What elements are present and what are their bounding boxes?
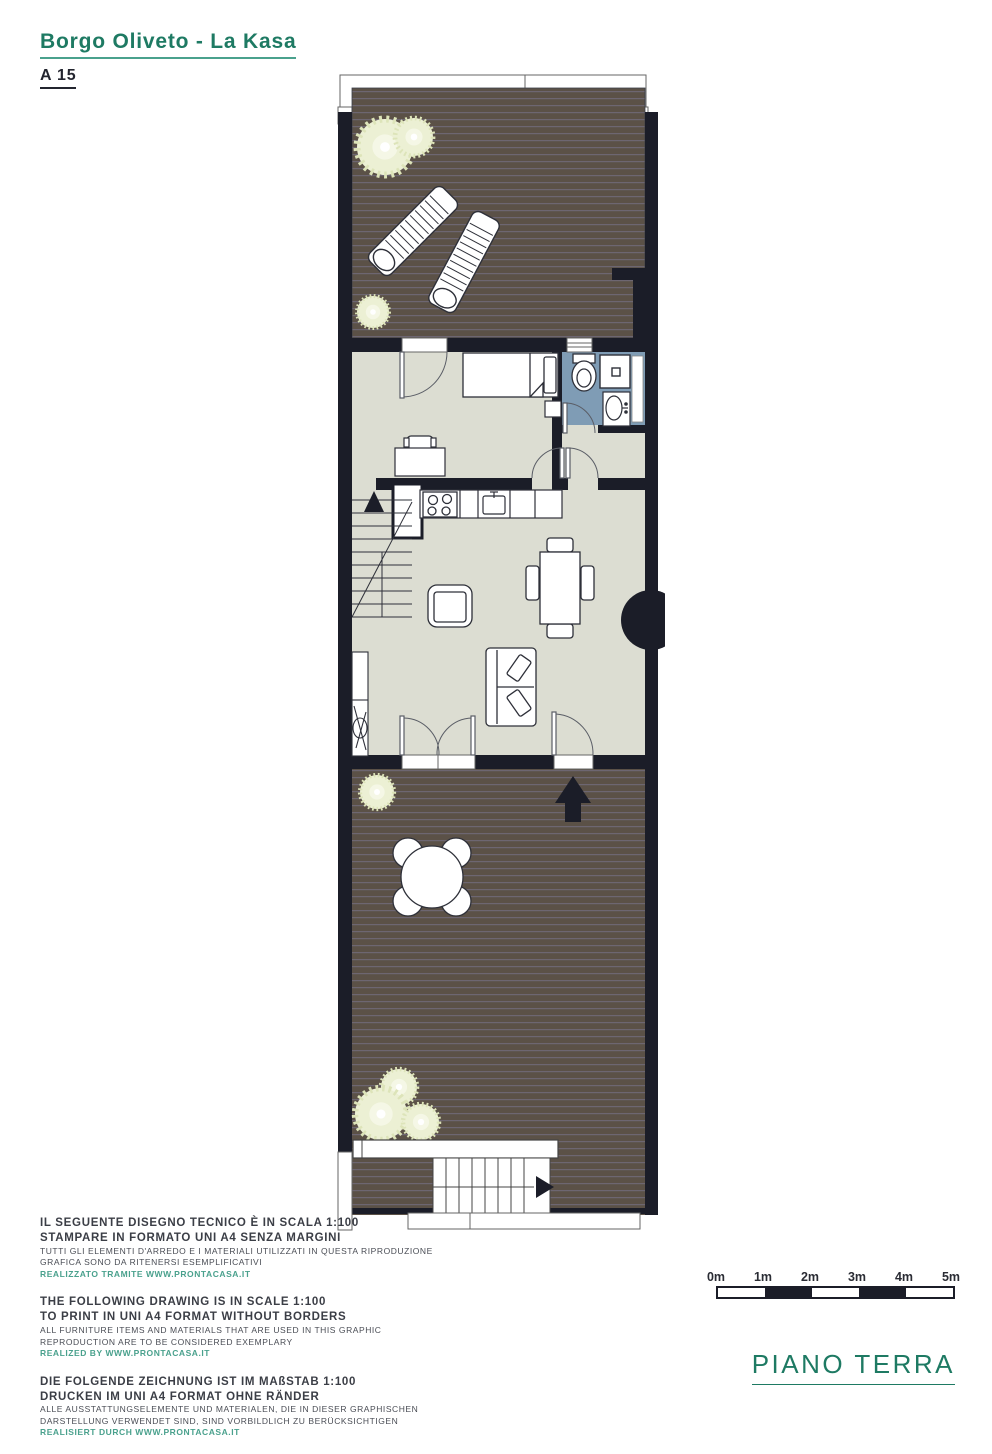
scale-label: 3m [848,1270,866,1284]
shower-glass [632,356,643,422]
disclaimer-de: DIE FOLGENDE ZEICHNUNG IST IM MAßSTAB 1:… [40,1375,470,1439]
credit-link[interactable]: REALIZZATO TRAMITE WWW.PRONTACASA.IT [40,1269,470,1280]
floor-label: PIANO TERRA [752,1349,955,1385]
chair-icon [407,436,433,449]
scale-label: 2m [801,1270,819,1284]
scale-label: 5m [942,1270,960,1284]
disclaimer-line: ALLE AUSSTATTUNGSELEMENTE UND MATERIALEN… [40,1404,470,1415]
armchair-icon [428,585,472,627]
scale-segment [906,1288,953,1297]
shower-icon [600,355,630,388]
wardrobe-icon [352,652,368,756]
page-title: Borgo Oliveto - La Kasa [40,30,296,59]
plant-icon [360,775,394,809]
scale-segment [812,1288,859,1297]
disclaimer-it: IL SEGUENTE DISEGNO TECNICO È IN SCALA 1… [40,1216,470,1280]
scale-label: 4m [895,1270,913,1284]
disclaimers: IL SEGUENTE DISEGNO TECNICO È IN SCALA 1… [40,1216,470,1454]
floor-plan [335,70,665,1235]
plant-icon [403,1104,439,1140]
scale-label: 0m [707,1270,725,1284]
scale-segment [765,1288,812,1297]
disclaimer-line: TUTTI GLI ELEMENTI D'ARREDO E I MATERIAL… [40,1246,470,1257]
disclaimer-line: TO PRINT IN UNI A4 FORMAT WITHOUT BORDER… [40,1310,470,1325]
scale-segment [859,1288,906,1297]
scale-labels: 0m 1m 2m 3m 4m 5m [716,1270,956,1286]
plant-icon [395,118,433,156]
disclaimer-line: GRAFICA SONO DA RITENERSI ESEMPLIFICATIV… [40,1257,470,1268]
sofa-icon [486,648,536,726]
exterior-stairs-icon [433,1158,554,1215]
plant-icon [357,296,389,328]
disclaimer-line: DIE FOLGENDE ZEICHNUNG IST IM MAßSTAB 1:… [40,1375,470,1390]
bench-icon [353,1140,558,1158]
toilet-icon [572,354,596,391]
disclaimer-line: STAMPARE IN FORMATO UNI A4 SENZA MARGINI [40,1231,470,1246]
scale-segment [718,1288,765,1297]
unit-label: A 15 [40,67,76,89]
round-table-icon [393,838,471,916]
plant-icon [355,1088,407,1140]
bathroom-sink-icon [603,392,630,426]
disclaimer-line: DRUCKEN IM UNI A4 FORMAT OHNE RÄNDER [40,1390,470,1405]
credit-link[interactable]: REALISIERT DURCH WWW.PRONTACASA.IT [40,1427,470,1438]
nightstand-icon [545,401,561,417]
credit-link[interactable]: REALIZED BY WWW.PRONTACASA.IT [40,1348,470,1359]
disclaimer-line: DARSTELLUNG VERWENDET SIND, SIND VORBILD… [40,1416,470,1427]
disclaimer-line: REPRODUCTION ARE TO BE CONSIDERED EXEMPL… [40,1337,470,1348]
scale-bar: 0m 1m 2m 3m 4m 5m [716,1270,956,1299]
disclaimer-line: THE FOLLOWING DRAWING IS IN SCALE 1:100 [40,1295,470,1310]
stove-icon [423,492,457,517]
bed-icon [463,353,558,397]
header: Borgo Oliveto - La Kasa A 15 [40,30,296,89]
scale-bar-graphic [716,1286,955,1299]
scale-label: 1m [754,1270,772,1284]
disclaimer-en: THE FOLLOWING DRAWING IS IN SCALE 1:100 … [40,1295,470,1359]
disclaimer-line: IL SEGUENTE DISEGNO TECNICO È IN SCALA 1… [40,1216,470,1231]
disclaimer-line: ALL FURNITURE ITEMS AND MATERIALS THAT A… [40,1325,470,1336]
